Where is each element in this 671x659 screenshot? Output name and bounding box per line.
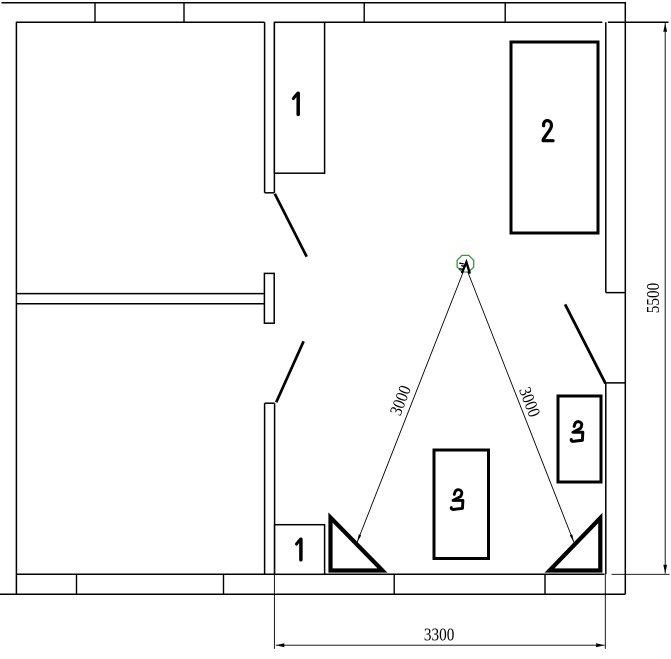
svg-text:3300: 3300 [424,624,454,644]
svg-text:5500: 5500 [643,283,663,313]
